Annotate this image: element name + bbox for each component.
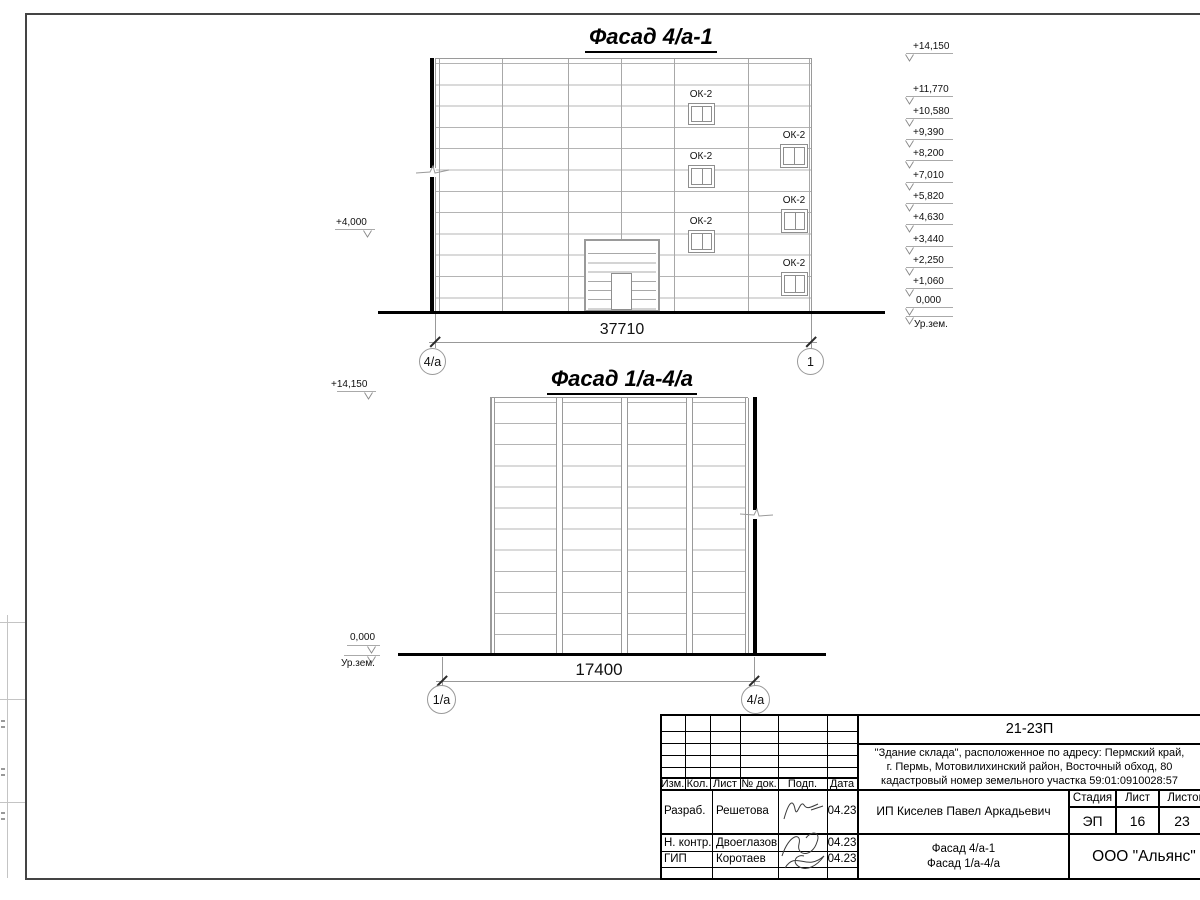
axis-label: 1/a — [433, 693, 450, 707]
organization-name: ООО "Альянс" — [1070, 835, 1200, 878]
tb-line — [660, 767, 857, 768]
margin-text-mark — [1, 818, 5, 820]
window-ok2 — [688, 165, 715, 188]
facade1-title: Фасад 4/а-1 — [501, 24, 801, 50]
window-tag: ОК-2 — [684, 89, 718, 100]
extension-line — [442, 657, 443, 687]
axis-bubble-4a: 4/a — [741, 685, 770, 714]
frame-top-line — [25, 13, 1200, 15]
elevation-mark-icon — [904, 54, 915, 62]
elevation-mark-icon — [904, 140, 915, 148]
axis-label: 1 — [807, 355, 814, 369]
ground-level-label: Ур.зем. — [341, 658, 375, 669]
elevation-mark-icon — [362, 230, 373, 238]
panel-joint-lines — [491, 402, 747, 653]
elevation-mark-icon — [904, 204, 915, 212]
window-tag: ОК-2 — [684, 216, 718, 227]
margin-text-mark — [1, 812, 5, 814]
col-header-izm: Изм. — [660, 777, 685, 790]
address-line: "Здание склада", расположенное по адресу… — [875, 746, 1185, 760]
elevation-mark-text: 0,000 — [916, 295, 941, 306]
elevation-mark-text: +11,770 — [913, 84, 949, 95]
elevation-mark-icon — [904, 97, 915, 105]
stage-label: Стадия — [1070, 790, 1115, 806]
elevation-mark-text: +14,150 — [913, 41, 949, 52]
col-header-data: Дата — [827, 777, 857, 790]
date-razrab: 04.23 — [827, 791, 857, 831]
drawing-title-line: Фасад 1/а-4/а — [927, 857, 1000, 872]
title-block: 21-23П "Здание склада", расположенное по… — [660, 714, 1200, 880]
elevation-mark-icon — [904, 268, 915, 276]
margin-table-line — [0, 622, 25, 623]
sheets-total: 23 — [1160, 808, 1200, 833]
elevation-mark-text: +1,060 — [913, 276, 944, 287]
dimension-value: 37710 — [577, 321, 667, 339]
tb-line — [660, 755, 857, 756]
panel-joint-vertical — [809, 59, 810, 312]
axis-label: 4/a — [424, 355, 441, 369]
window-ok2 — [688, 103, 715, 125]
column-edge — [745, 398, 749, 653]
col-header-podp: Подп. — [778, 777, 827, 790]
break-symbol-icon — [740, 506, 774, 520]
tb-line — [660, 878, 1200, 880]
column — [556, 398, 563, 653]
axis-label: 4/a — [747, 693, 764, 707]
elevation-mark-text: +7,010 — [913, 170, 944, 181]
axis-line-4a — [430, 58, 434, 312]
window-tag: ОК-2 — [777, 130, 811, 141]
elevation-mark-text: 0,000 — [350, 632, 375, 643]
ground-line — [398, 653, 826, 656]
role-nkontr: Н. контр. — [664, 835, 712, 851]
dimension-value: 17400 — [554, 660, 644, 680]
drawing-sheet: Фасад 4/а-1 ОК-2 ОК-2 ОК-2 ОК-2 ОК-2 ОК-… — [0, 0, 1200, 900]
col-header-list: Лист — [710, 777, 740, 790]
axis-bubble-4a: 4/a — [419, 348, 446, 375]
elevation-mark-text: +14,150 — [331, 379, 367, 390]
axis-bubble-1: 1 — [797, 348, 824, 375]
elevation-mark-text: +2,250 — [913, 255, 944, 266]
margin-table-line — [0, 802, 25, 803]
window-ok2 — [688, 230, 715, 253]
elevation-mark-text: +4,000 — [336, 217, 367, 228]
dimension-line — [436, 681, 760, 682]
facade2-title: Фасад 1/а-4/а — [472, 366, 772, 392]
elevation-mark-text: +8,200 — [913, 148, 944, 159]
client-name: ИП Киселев Павел Аркадьевич — [859, 791, 1068, 831]
window-ok2 — [781, 209, 808, 233]
panel-joint-vertical — [502, 59, 503, 312]
break-symbol-icon — [416, 163, 450, 177]
drawing-title-line: Фасад 4/а-1 — [932, 842, 995, 857]
signature-razrab — [780, 793, 825, 827]
window-ok2 — [780, 144, 808, 168]
elevation-mark-icon — [366, 646, 377, 654]
sheet-number: 16 — [1117, 808, 1158, 833]
wicket-door — [611, 273, 632, 310]
project-code: 21-23П — [859, 716, 1200, 742]
panel-joint-vertical — [568, 59, 569, 312]
name-gip: Коротаев — [716, 851, 777, 867]
role-razrab: Разраб. — [664, 791, 712, 831]
elevation-mark-icon — [904, 161, 915, 169]
elevation-mark-icon — [904, 119, 915, 127]
elevation-mark-text: +10,580 — [913, 106, 949, 117]
window-tag: ОК-2 — [777, 258, 811, 269]
column — [686, 398, 693, 653]
elevation-mark-icon — [904, 247, 915, 255]
facade2-elevation-view — [490, 397, 748, 654]
name-nkontr: Двоеглазов — [716, 835, 777, 851]
sheet-label: Лист — [1117, 790, 1158, 806]
name-razrab: Решетова — [716, 791, 777, 831]
elevation-mark-text: +5,820 — [913, 191, 944, 202]
elevation-mark-icon — [904, 225, 915, 233]
column-edge — [491, 398, 495, 653]
window-tag: ОК-2 — [684, 151, 718, 162]
margin-text-mark — [1, 720, 5, 722]
ground-line — [378, 311, 885, 314]
role-gip: ГИП — [664, 851, 712, 867]
extension-line — [754, 657, 755, 687]
axis-line-4a — [753, 397, 757, 655]
date-gip: 04.23 — [827, 851, 857, 867]
extension-line — [811, 314, 812, 349]
elevation-mark-icon — [904, 308, 915, 316]
column — [621, 398, 628, 653]
address-line: кадастровый номер земельного участка 59:… — [881, 774, 1178, 788]
frame-left-line — [25, 13, 27, 880]
ground-level-label: Ур.зем. — [914, 319, 948, 330]
project-address: "Здание склада", расположенное по адресу… — [859, 745, 1200, 788]
panel-joint-vertical — [674, 59, 675, 312]
tb-line — [660, 743, 857, 744]
margin-table-line — [7, 615, 8, 878]
date-nkontr: 04.23 — [827, 835, 857, 851]
margin-text-mark — [1, 768, 5, 770]
window-ok2 — [781, 272, 808, 296]
panel-joint-vertical — [439, 59, 440, 312]
elevation-mark-icon — [904, 183, 915, 191]
address-line: г. Пермь, Мотовилихинский район, Восточн… — [887, 760, 1173, 774]
sectional-gate — [584, 239, 660, 312]
window-tag: ОК-2 — [777, 195, 811, 206]
stage-value: ЭП — [1070, 808, 1115, 833]
dimension-line — [429, 342, 817, 343]
elevation-mark-text: +9,390 — [913, 127, 944, 138]
facade1-elevation-view: ОК-2 ОК-2 ОК-2 ОК-2 ОК-2 ОК-2 — [435, 58, 812, 313]
margin-table-line — [0, 699, 25, 700]
col-header-ndok: № док. — [740, 777, 778, 790]
elevation-mark-text: +3,440 — [913, 234, 944, 245]
tb-line — [660, 714, 662, 880]
signature-nkontr-gip — [776, 824, 830, 878]
margin-text-mark — [1, 726, 5, 728]
drawing-titles: Фасад 4/а-1 Фасад 1/а-4/а — [859, 835, 1068, 878]
elevation-mark-text: +4,630 — [913, 212, 944, 223]
axis-bubble-1a: 1/a — [427, 685, 456, 714]
sheets-label: Листов — [1160, 790, 1200, 806]
col-header-kol: Кол. — [685, 777, 710, 790]
margin-text-mark — [1, 774, 5, 776]
tb-line — [660, 731, 857, 732]
panel-joint-vertical — [748, 59, 749, 312]
elevation-mark-icon — [904, 289, 915, 297]
elevation-mark-icon — [363, 392, 374, 400]
